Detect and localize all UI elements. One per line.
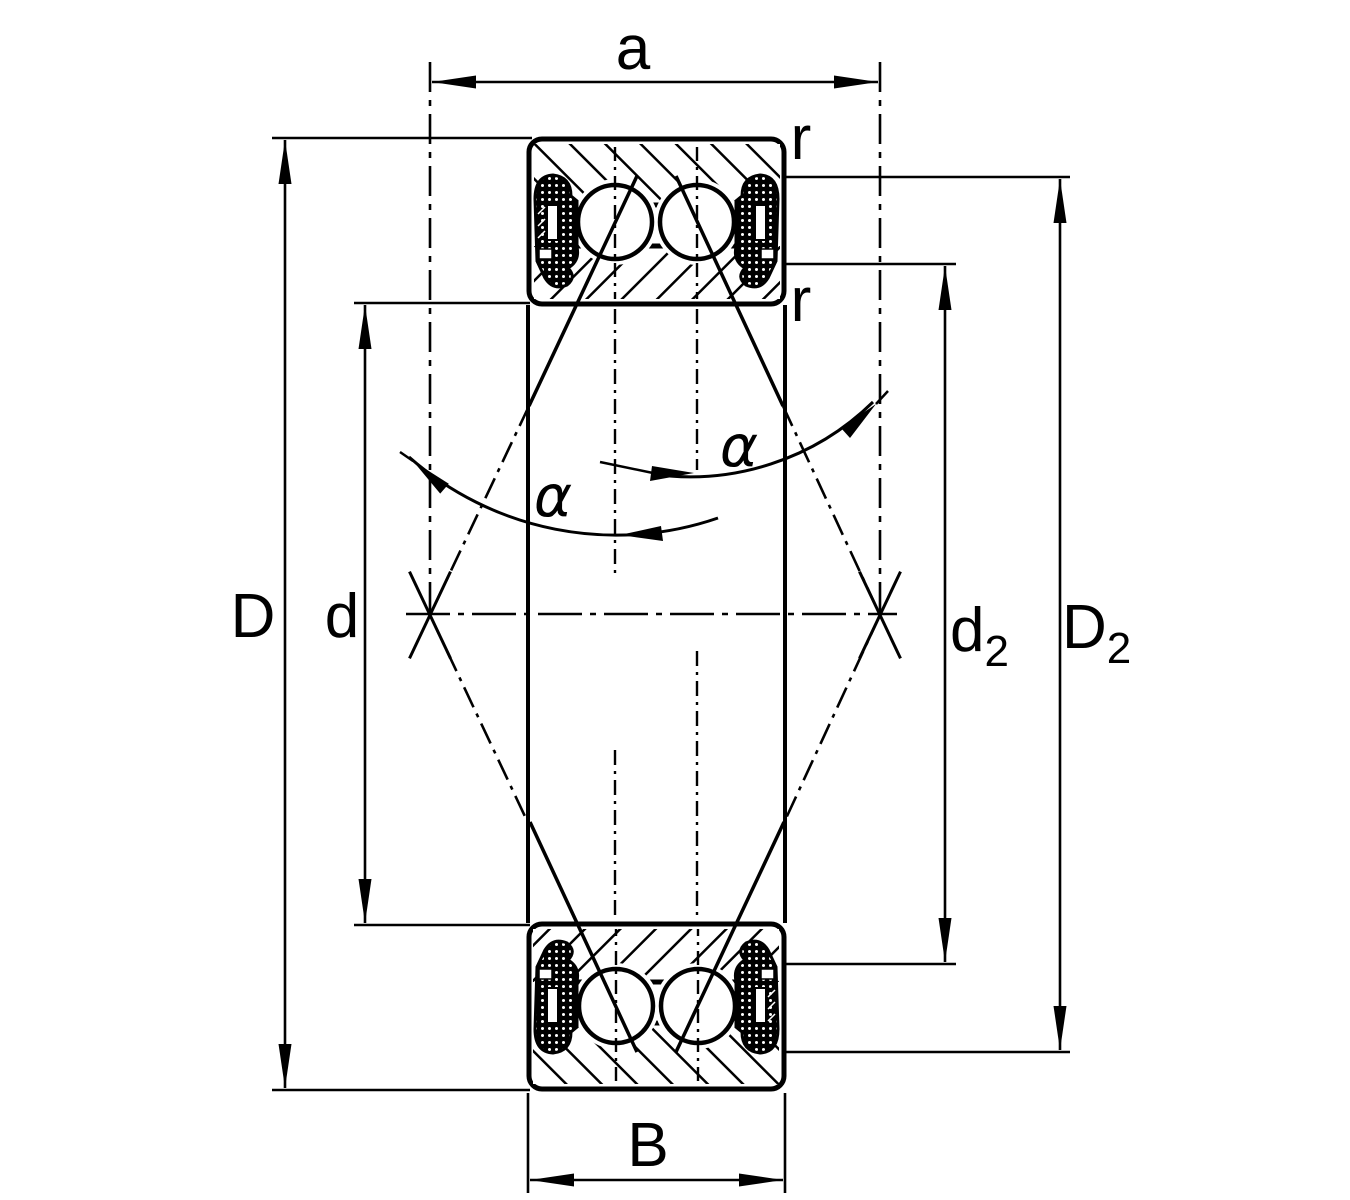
label-alpha-right: α: [720, 412, 758, 480]
drawing-canvas: a r r D d d2 D2 B α α: [0, 0, 1350, 1200]
label-dim-d2-base: d: [950, 596, 984, 665]
dimension-d: [359, 305, 372, 923]
top-bearing-section: [529, 139, 784, 406]
label-dim-D2: D2: [1062, 593, 1131, 673]
dimension-a: [432, 76, 878, 89]
label-radius-inner: r: [791, 266, 812, 335]
bearing-dimension-diagram: a r r D d d2 D2 B α α: [0, 0, 1350, 1200]
bottom-bearing-section: [529, 822, 784, 1089]
label-dim-d2-sub: 2: [984, 627, 1008, 676]
label-alpha-left: α: [534, 462, 572, 530]
label-dim-D: D: [231, 582, 276, 651]
label-dim-d: d: [325, 582, 359, 651]
label-dim-a: a: [616, 14, 651, 83]
label-dim-D2-sub: 2: [1107, 624, 1131, 673]
dimension-D: [279, 140, 292, 1088]
label-dim-d2: d2: [950, 596, 1009, 676]
label-radius-top: r: [791, 104, 812, 173]
label-dim-B: B: [627, 1111, 668, 1180]
label-dim-D2-base: D: [1062, 593, 1107, 662]
